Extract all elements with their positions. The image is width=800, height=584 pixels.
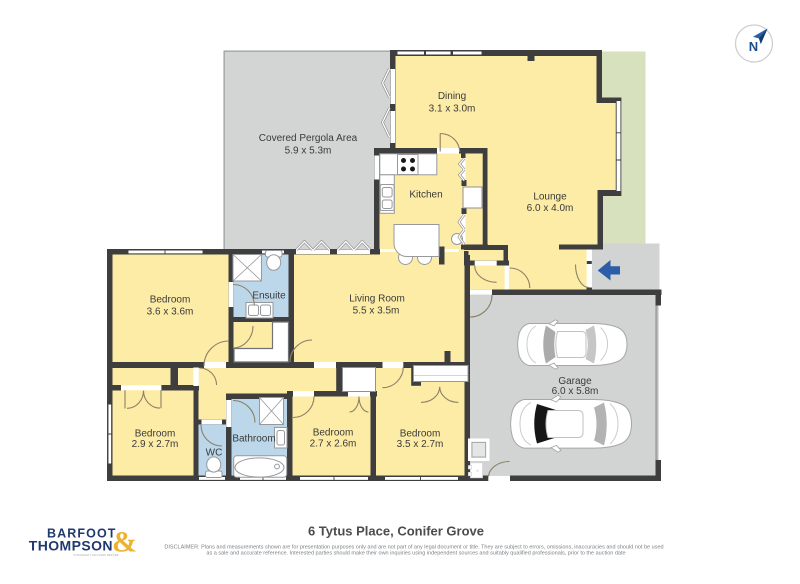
svg-text:Lounge: Lounge [533, 192, 567, 203]
svg-text:Bedroom: Bedroom [400, 429, 441, 440]
svg-text:STRONGER THAN EVER BEFORE: STRONGER THAN EVER BEFORE [73, 553, 118, 557]
svg-text:Bedroom: Bedroom [313, 428, 354, 439]
svg-text:Living Room: Living Room [349, 294, 405, 305]
svg-text:6.0 x 4.0m: 6.0 x 4.0m [527, 203, 574, 214]
svg-text:Dining: Dining [438, 91, 466, 102]
svg-text:as a sale and accurate referen: as a sale and accurate reference. Intere… [206, 550, 625, 556]
svg-text:Bedroom: Bedroom [150, 295, 191, 306]
svg-text:2.9 x 2.7m: 2.9 x 2.7m [132, 439, 179, 450]
svg-text:N: N [749, 39, 758, 54]
svg-text:Kitchen: Kitchen [409, 190, 442, 201]
svg-text:5.9 x 5.3m: 5.9 x 5.3m [285, 146, 332, 157]
svg-text:5.5 x 3.5m: 5.5 x 3.5m [353, 306, 400, 317]
svg-text:Ensuite: Ensuite [252, 291, 286, 302]
svg-text:THOMPSON: THOMPSON [29, 538, 113, 554]
svg-text:Bathroom: Bathroom [232, 434, 275, 445]
svg-text:3.1 x 3.0m: 3.1 x 3.0m [429, 104, 476, 115]
svg-text:6 Tytus Place, Conifer Grove: 6 Tytus Place, Conifer Grove [308, 524, 484, 539]
svg-text:2.7 x 2.6m: 2.7 x 2.6m [310, 439, 357, 450]
svg-text:3.6 x 3.6m: 3.6 x 3.6m [147, 307, 194, 318]
svg-text:WC: WC [206, 448, 223, 459]
svg-text:3.5 x 2.7m: 3.5 x 2.7m [397, 439, 444, 450]
svg-text:6.0 x 5.8m: 6.0 x 5.8m [552, 386, 599, 397]
svg-text:Bedroom: Bedroom [135, 429, 176, 440]
svg-text:Covered Pergola Area: Covered Pergola Area [259, 133, 358, 144]
